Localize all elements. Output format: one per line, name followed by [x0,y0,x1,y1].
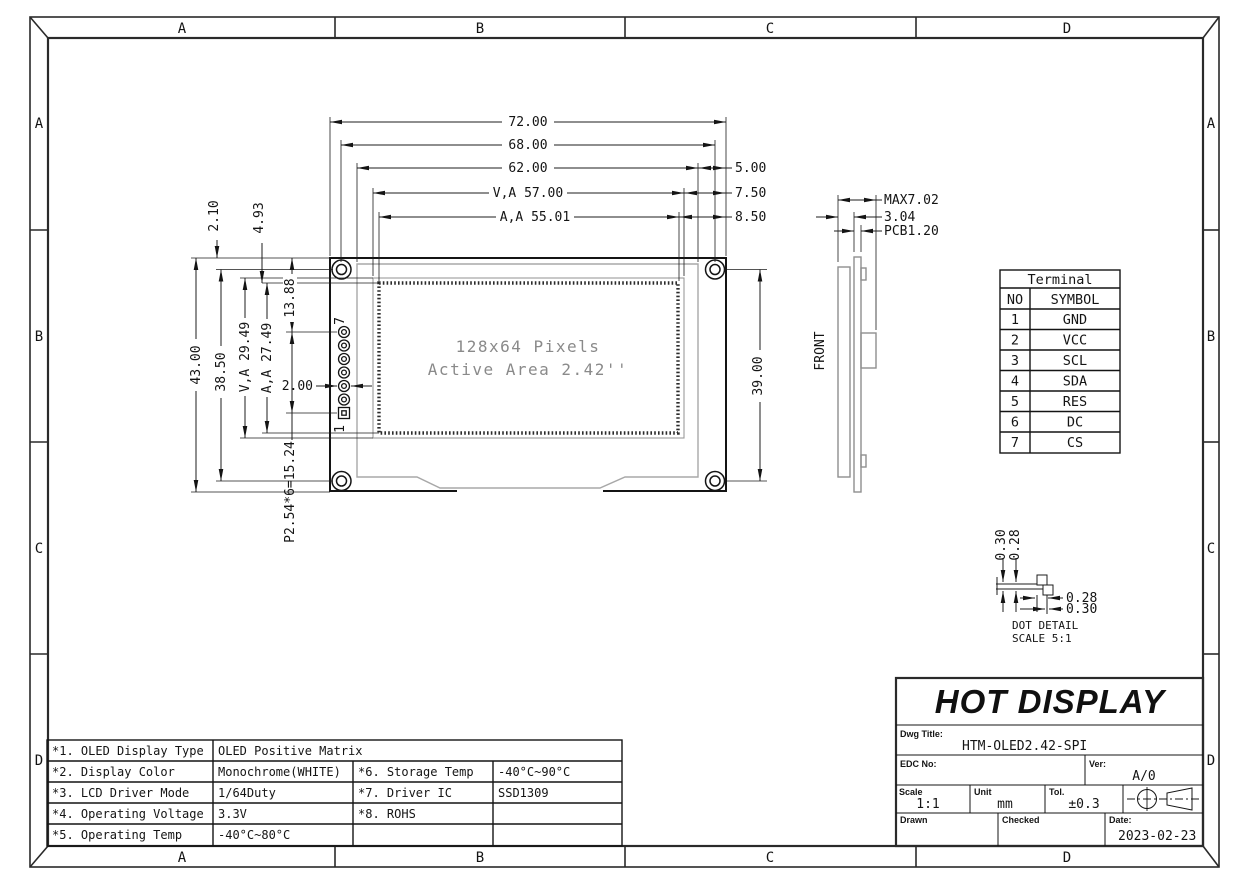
zone-letter-top-b: B [476,21,484,37]
dim-width-holes: 68.00 [508,138,547,153]
drawn-label: Drawn [900,815,928,825]
dim-height-pcb: 43.00 [189,345,204,384]
dot-detail-scale: SCALE 5:1 [1012,632,1072,645]
side-top-pin [861,268,866,280]
dot-dim-h-outer: 0.30 [1066,602,1097,617]
dim-pcb-thickness: PCB1.20 [884,224,939,239]
side-view: FRONT MAX7.02 3.04 PCB1.20 [813,193,939,492]
tol-value: ±0.3 [1068,797,1099,812]
zone-letter-bottom-c: C [766,850,774,866]
side-front-label: FRONT [813,331,828,370]
spec-cell: *3. LCD Driver Mode [52,786,189,800]
dim-height-holes: 38.50 [214,352,229,391]
terminal-row-symbol: SDA [1063,374,1087,390]
terminal-row-symbol: DC [1067,415,1083,431]
spec-cell: *5. Operating Temp [52,828,182,842]
dim-aa-offset: 4.93 [252,202,267,233]
terminal-row-symbol: VCC [1063,333,1087,349]
scale-value: 1:1 [916,797,939,812]
dim-width-va: V,A 57.00 [493,186,563,201]
dim-pin-dia: 2.00 [282,379,313,394]
zone-letter-top-c: C [766,21,774,37]
edc-no-label: EDC No: [900,759,937,769]
spec-cell: *6. Storage Temp [358,765,474,779]
zone-letter-bottom-b: B [476,850,484,866]
front-view: 128x64 Pixels Active Area 2.42'' 7 1 [330,258,726,491]
ver-value: A/0 [1132,769,1155,784]
viewing-area-outline [373,278,684,438]
dim-max-thickness: MAX7.02 [884,193,939,208]
active-area-outline [379,283,678,433]
spec-cell: *4. Operating Voltage [52,807,204,821]
pin-7-label: 7 [333,317,348,325]
zone-letter-right-c: C [1207,541,1215,557]
dot-detail-title: DOT DETAIL [1012,619,1079,632]
unit-label: Unit [974,787,992,797]
zone-letter-top-a: A [178,21,187,37]
terminal-col-no: NO [1007,292,1023,308]
spec-cell: 1/64Duty [218,786,276,800]
terminal-table: Terminal NO SYMBOL 1 GND 2 VCC 3 SCL 4 S… [1000,270,1120,453]
scale-label: Scale [899,787,923,797]
company-logo-text: HOT DISPLAY [935,683,1167,720]
dot-detail: 0.30 0.28 0.28 0.30 DOT DETAIL SCALE 5:1 [994,529,1097,645]
terminal-row-no: 1 [1011,312,1019,328]
active-area-resolution-text: 128x64 Pixels [456,337,601,356]
spec-cell: -40°C~80°C [218,828,290,842]
spec-cell: *7. Driver IC [358,786,452,800]
side-bottom-pin [861,455,866,467]
drawing-canvas: A B C D A B C D A B C D A B C D 128x64 P… [0,0,1250,884]
zone-letter-right-b: B [1207,329,1215,345]
terminal-row-symbol: GND [1063,312,1087,328]
terminal-row-no: 2 [1011,333,1019,349]
terminal-row-no: 4 [1011,374,1019,390]
zone-letter-left-b: B [35,329,43,345]
active-area-size-text: Active Area 2.42'' [428,360,628,379]
spec-cell: SSD1309 [498,786,549,800]
dimensions-top: 72.00 68.00 62.00 V,A 57.00 A,A 55.01 5.… [330,115,766,281]
dimension-hole-span-vertical: 39.00 [727,270,767,482]
spec-cell: *1. OLED Display Type [52,744,204,758]
projection-symbol-icon [1127,787,1199,811]
dwg-title-label: Dwg Title: [900,729,943,739]
side-pcb-outline [854,257,861,492]
zone-letter-left-c: C [35,541,43,557]
dim-pin7-offset: 13.88 [283,278,298,317]
title-block: HOT DISPLAY Dwg Title: HTM-OLED2.42-SPI … [896,678,1203,846]
zone-letter-right-a: A [1207,116,1216,132]
terminal-row-no: 7 [1011,435,1019,451]
dim-top-margin: 2.10 [207,200,222,231]
pin-1-label: 1 [333,425,348,433]
ver-label: Ver: [1089,759,1106,769]
terminal-col-symbol: SYMBOL [1051,292,1100,308]
zone-letter-right-d: D [1207,753,1215,769]
tol-label: Tol. [1049,787,1064,797]
dim-module-thickness: 3.04 [884,210,915,225]
spec-cell: Monochrome(WHITE) [218,765,341,779]
terminal-rows: 1 GND 2 VCC 3 SCL 4 SDA 5 RES 6 DC 7 CS [1011,312,1087,451]
dim-right-aa-gap: 8.50 [735,210,766,225]
dim-width-pcb: 72.00 [508,115,547,130]
terminal-row-symbol: SCL [1063,353,1087,369]
unit-value: mm [997,797,1013,812]
date-value: 2023-02-23 [1118,829,1196,844]
zone-letter-left-a: A [35,116,44,132]
dim-width-aa: A,A 55.01 [500,210,570,225]
engineering-drawing-page: A B C D A B C D A B C D A B C D 128x64 P… [0,0,1250,884]
checked-label: Checked [1002,815,1040,825]
dim-height-va: V,A 29.49 [238,322,253,392]
side-connector [861,333,876,368]
dim-width-bezel: 62.00 [508,161,547,176]
dim-height-aa: A,A 27.49 [260,323,275,393]
terminal-row-no: 6 [1011,415,1019,431]
side-panel-outline [838,267,850,477]
zone-letter-left-d: D [35,753,43,769]
dot-dim-v-outer: 0.30 [994,529,1009,560]
spec-cell: OLED Positive Matrix [218,744,363,758]
spec-cell: -40°C~90°C [498,765,570,779]
dim-right-va-gap: 7.50 [735,186,766,201]
pin-header [339,327,350,419]
zone-letter-bottom-a: A [178,850,187,866]
terminal-row-symbol: CS [1067,435,1083,451]
dwg-title-value: HTM-OLED2.42-SPI [962,739,1087,754]
spec-table: *1. OLED Display Type OLED Positive Matr… [47,740,622,846]
dot-dim-v-inner: 0.28 [1008,529,1023,560]
zone-letter-bottom-d: D [1063,850,1071,866]
date-label: Date: [1109,815,1132,825]
dim-hole-span-v: 39.00 [751,356,766,395]
spec-cell: *2. Display Color [52,765,175,779]
terminal-row-no: 5 [1011,394,1019,410]
dot-pixel-upper [1037,575,1047,585]
spec-cell: *8. ROHS [358,807,416,821]
zone-letter-top-d: D [1063,21,1071,37]
terminal-table-title: Terminal [1027,272,1092,288]
dot-pixel-lower [1043,585,1053,595]
terminal-row-symbol: RES [1063,394,1087,410]
dim-pin-pitch: P2.54*6=15.24 [283,441,298,543]
spec-cell: 3.3V [218,807,247,821]
terminal-row-no: 3 [1011,353,1019,369]
dim-right-bezel-gap: 5.00 [735,161,766,176]
